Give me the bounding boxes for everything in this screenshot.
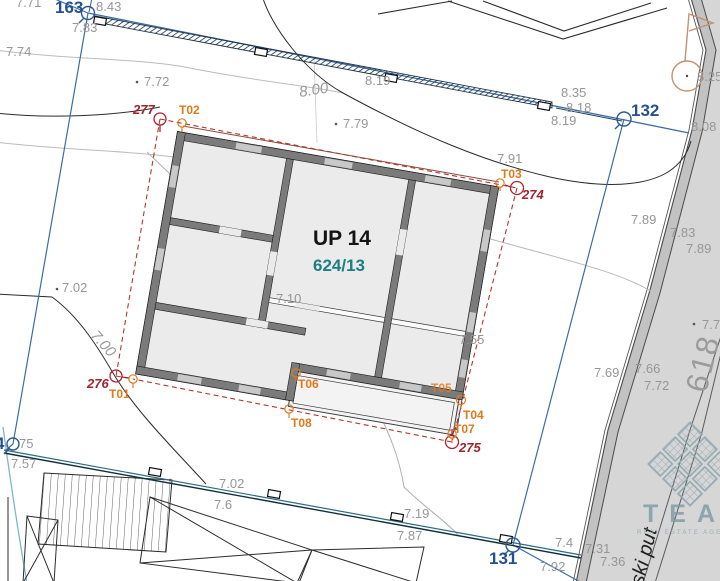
watermark-tagline-label: REAL ESTATE AGEN (637, 529, 720, 536)
hatched-building (38, 473, 172, 552)
elevation-label: 7.79 (343, 116, 368, 131)
site-plan-drawing: 618 ski put (0, 0, 720, 581)
gate-symbol (254, 48, 267, 57)
point-4-label: 4 (0, 434, 5, 453)
elevation-label: 7.02 (219, 476, 244, 491)
elevation-label: 7.89 (686, 241, 711, 256)
gate-symbol (390, 513, 403, 522)
elevation-label: 7.10 (276, 291, 301, 306)
elevation-label: 7.66 (635, 361, 660, 376)
dot (136, 81, 139, 84)
elevation-label: 7.91 (497, 151, 522, 166)
point-t04-label: T04 (463, 408, 484, 422)
point-t02-label: T02 (179, 103, 200, 117)
point-163-label: 163 (55, 0, 83, 17)
point-t01-label: T01 (109, 387, 130, 401)
point-277-label: 277 (132, 102, 155, 117)
elevation-label: 8.43 (96, 0, 121, 14)
point-t07-label: T07 (454, 422, 475, 436)
elevation-label: 7.69 (594, 365, 619, 380)
dot (693, 323, 696, 326)
elevation-label: 7.7 (702, 317, 720, 332)
elevation-label: 7.4 (555, 535, 573, 550)
point-t05-label: T05 (431, 381, 452, 395)
point-274-label: 274 (521, 187, 544, 202)
elevation-label: 7.72 (144, 74, 169, 89)
elevation-label: 7.6 (214, 497, 232, 512)
elevation-label: 7.72 (644, 378, 669, 393)
watermark-brand-label: TEAM (643, 500, 720, 528)
elevation-label: 7.36 (600, 554, 625, 569)
elevation-label: 7.92 (540, 559, 565, 574)
elevation-label: 7.19 (404, 506, 429, 521)
elevation-label: 7.87 (397, 528, 422, 543)
gate-symbol (537, 102, 550, 111)
dot (335, 123, 338, 126)
point-276-label: 276 (86, 376, 109, 391)
dot (56, 288, 59, 291)
elevation-label: 7.55 (459, 332, 484, 347)
point-t03-label: T03 (501, 167, 522, 181)
point-132-label: 132 (631, 101, 659, 120)
elevation-label: 8.19 (551, 113, 576, 128)
elevation-label: 7.74 (6, 44, 31, 59)
elevation-label: 7.02 (62, 280, 87, 295)
plan-canvas: 618 ski put (0, 0, 720, 581)
elevation-label: 7.89 (631, 212, 656, 227)
gate-symbol (148, 468, 161, 477)
point-275-label: 275 (458, 440, 481, 455)
unit-title-label: UP 14 (313, 227, 371, 250)
elevation-label: 7.83 (72, 20, 97, 35)
parcel-number-label: 624/13 (313, 256, 365, 275)
elevation-label: 8.25 (697, 69, 720, 84)
elevation-label: 7.71 (16, 0, 41, 10)
flag-center-dot (686, 75, 688, 77)
elevation-label: 8.08 (691, 119, 716, 134)
elevation-label: 8.35 (561, 85, 586, 100)
point-t06-label: T06 (298, 377, 319, 391)
gate-symbol (267, 490, 280, 499)
elevation-label: 75 (19, 436, 33, 451)
point-131-label: 131 (489, 549, 517, 568)
elevation-label: 7.57 (11, 456, 36, 471)
elevation-label: 8.19 (365, 73, 390, 88)
point-t08-label: T08 (291, 416, 312, 430)
dot (169, 479, 172, 482)
elevation-label: 7.83 (670, 225, 695, 240)
